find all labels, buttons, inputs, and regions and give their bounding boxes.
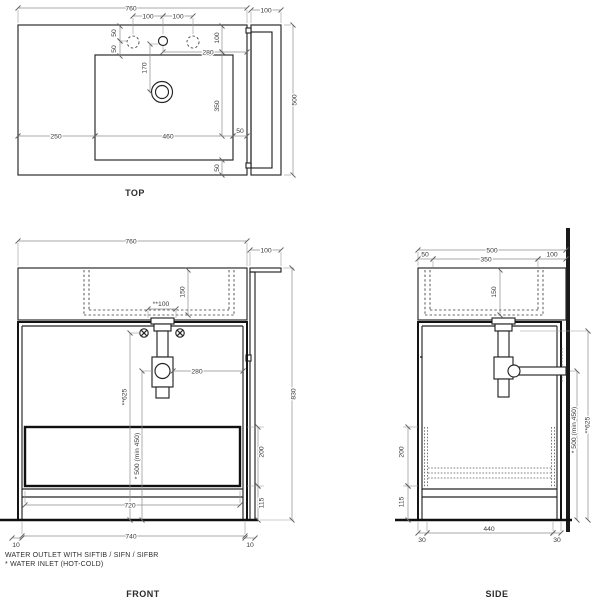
dim-front-plinth-height: 115 [259,497,266,508]
dim-top-drain-axis: 350 [214,100,221,112]
dim-side-overall-depth: 500 [486,247,498,254]
bottle-trap-front [140,318,184,398]
dim-front-side-panel-width: 100 [260,247,272,254]
dim-front-trap-to-side: 280 [191,368,203,375]
dim-top-overall-depth: 500 [292,94,299,106]
technical-drawing: 760 100 100 50 50 100 280 170 350 250 46… [0,0,603,600]
waste-pipe [518,367,566,375]
dim-side-inlet-height: * 500 (min 450) [571,407,578,453]
top-view-title: TOP [125,188,145,198]
dim-side-leg-offset-front: 30 [418,537,426,544]
side-view-geometry [395,228,572,532]
dim-front-inlet-height: * 500 (min 450) [134,433,141,479]
dim-side-basin-depth: 150 [491,286,498,298]
dim-top-hole-offset-2: 50 [111,45,118,53]
top-view-geometry [18,25,281,175]
dim-top-basin-width: 460 [162,133,174,140]
dim-front-basin-depth: 150 [180,286,187,298]
top-view: 760 100 100 50 50 100 280 170 350 250 46… [18,5,299,198]
dim-side-plinth-height: 115 [399,496,406,507]
dim-front-leg-offset-right: 10 [246,542,254,549]
dim-side-drain-offset: 350 [480,256,492,263]
front-view-title: FRONT [126,589,160,599]
dim-front-outlet-pitch: **100 [153,301,170,308]
dim-top-faucet-to-drain: 170 [142,62,149,74]
dim-top-faucet-to-edge: 280 [202,49,214,56]
elbow-joint [508,365,520,377]
dim-front-overall-height: 830 [291,388,298,400]
dim-top-overall-width: 760 [125,5,137,12]
dim-side-base-depth: 440 [483,526,495,533]
front-view-dimensions [12,241,294,538]
front-view-geometry [0,268,281,520]
dim-top-side-panel-width: 100 [260,7,272,14]
dim-side-front-offset: 50 [421,252,429,259]
optional-hole-left-icon [127,36,139,48]
dim-top-left-margin: 250 [50,133,62,140]
dim-top-right-margin: 50 [236,128,244,135]
dim-front-leg-offset-left: 10 [12,542,20,549]
dim-side-back-offset: 100 [546,252,558,259]
faucet-hole-icon [159,37,168,46]
dim-top-back-inset: 100 [214,32,221,44]
dim-front-inner-width: 720 [124,502,136,509]
footnotes: WATER OUTLET WITH SIFTIB / SIFN / SIFBR … [5,552,159,568]
dim-side-drawer-height: 200 [399,446,406,458]
dim-front-overall-width: 760 [125,238,137,245]
dim-top-faucet-pitch-left: 100 [142,13,154,20]
dim-front-base-width: 740 [125,533,137,540]
side-view-title: SIDE [485,589,508,599]
note-water-outlet: WATER OUTLET WITH SIFTIB / SIFN / SIFBR [5,552,159,559]
dim-front-drawer-height: 200 [259,446,266,458]
drain-icon-inner [156,86,169,99]
fixing-mark [420,356,422,358]
dim-top-hole-offset-1: 50 [111,29,118,37]
bottle-trap-side [492,318,566,397]
dim-front-outlet-height: **625 [122,388,129,405]
dim-side-leg-offset-back: 30 [553,537,561,544]
dim-top-front-margin: 50 [214,164,221,172]
drawer-front [25,427,240,486]
side-view: 500 50 350 100 150 200 115 440 30 30 * 5… [395,228,592,599]
dim-side-outlet-height: **625 [585,416,592,433]
dim-top-faucet-pitch-right: 100 [172,13,184,20]
drawing-canvas: 760 100 100 50 50 100 280 170 350 250 46… [0,0,603,600]
optional-hole-right-icon [187,36,199,48]
front-view: 760 100 830 150 **100 280 **625 * 500 (m… [0,238,298,599]
drain-icon [152,82,173,103]
note-water-inlet: * WATER INLET (HOT-COLD) [5,561,103,568]
